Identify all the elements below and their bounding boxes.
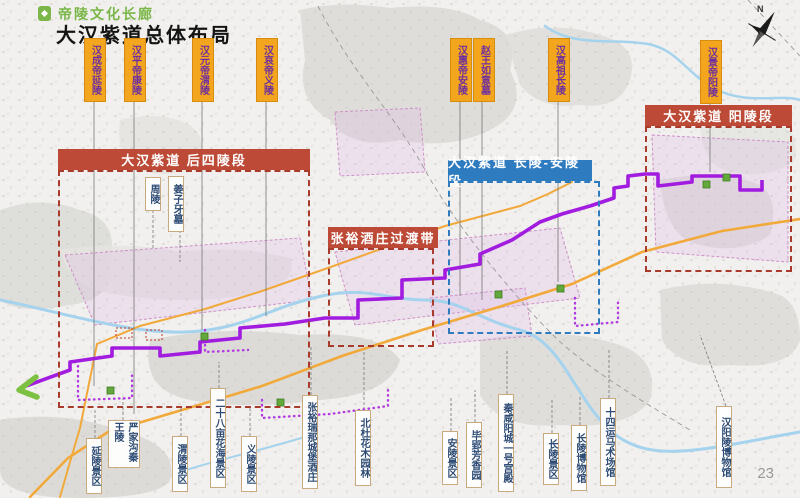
site-label-aroma-garden: 毕郢芳香园 [466, 422, 482, 488]
section-header-housiling: 大汉紫道 后四陵段 [58, 149, 310, 170]
site-label-zhangyu-winery: 张裕瑞那城堡酒庄 [302, 395, 318, 489]
site-label-weiling-area: 渭陵景区 [172, 436, 188, 492]
section-box-yangling [645, 126, 792, 272]
site-label-yangling-museum: 汉阳陵博物馆 [716, 406, 732, 488]
tomb-tag-anling: 汉惠帝安陵 [450, 38, 472, 102]
tomb-tag-zhaowang: 赵王如意墓 [473, 38, 495, 102]
site-label-qin-palace-no1: 秦咸阳城一号宫殿 [498, 394, 514, 492]
logo-mark [38, 6, 51, 21]
tomb-tag-changling: 汉高祖长陵 [548, 38, 570, 102]
site-label-zhouling: 周陵 [145, 177, 161, 211]
site-label-anling-area: 安陵景区 [442, 431, 458, 485]
section-box-changling-anling [448, 181, 600, 334]
tomb-tag-kangling: 汉平帝康陵 [124, 38, 146, 102]
section-header-changling-anling: 大汉紫道 长陵-安陵段 [448, 160, 592, 181]
tomb-tag-yanling: 汉成帝延陵 [84, 38, 106, 102]
tomb-tag-yiling: 汉哀帝义陵 [256, 38, 278, 102]
site-label-jiangziya-tomb: 姜子牙墓 [168, 176, 184, 232]
tomb-tag-weiling: 汉元帝渭陵 [192, 38, 214, 102]
compass-north-label: N [757, 4, 764, 14]
site-label-flower-sea: 二十八亩花海景区 [210, 388, 226, 488]
site-label-changling-museum: 长陵博物馆 [571, 425, 587, 491]
site-label-beidu-garden: 北杜花木园林 [355, 410, 371, 486]
section-header-zhangyu: 张裕酒庄过渡带 [328, 227, 438, 248]
site-label-yanling-area: 延陵景区 [86, 438, 102, 494]
site-label-changling-area: 长陵景区 [543, 433, 559, 485]
section-header-yangling: 大汉紫道 阳陵段 [645, 105, 792, 126]
section-box-housiling [58, 170, 310, 408]
site-label-equestrian-venue: 十四运马术场馆 [600, 398, 616, 486]
slide-map-han-purple-road: 帝陵文化长廊 大汉紫道总体布局 N 汉成帝延陵 汉平帝康陵 汉元帝渭陵 汉哀帝义… [0, 0, 800, 498]
page-number: 23 [757, 465, 774, 482]
section-box-zhangyu [328, 248, 434, 347]
site-label-yiling-area: 义陵景区 [241, 436, 257, 492]
site-label-yanjiagou: 严家沟秦王陵 [108, 420, 140, 468]
tomb-tag-yangling: 汉景帝阳陵 [700, 40, 722, 104]
